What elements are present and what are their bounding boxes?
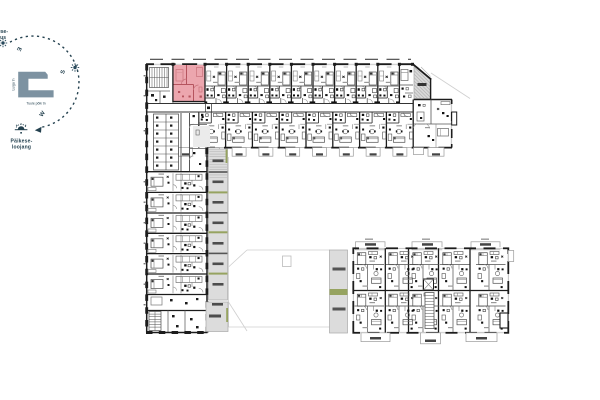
- svg-text:loojang: loojang: [12, 145, 31, 151]
- svg-text:tõus: tõus: [0, 35, 6, 41]
- svg-text:Luiga tn: Luiga tn: [12, 78, 16, 90]
- svg-text:Tuule põik tn: Tuule põik tn: [26, 102, 45, 106]
